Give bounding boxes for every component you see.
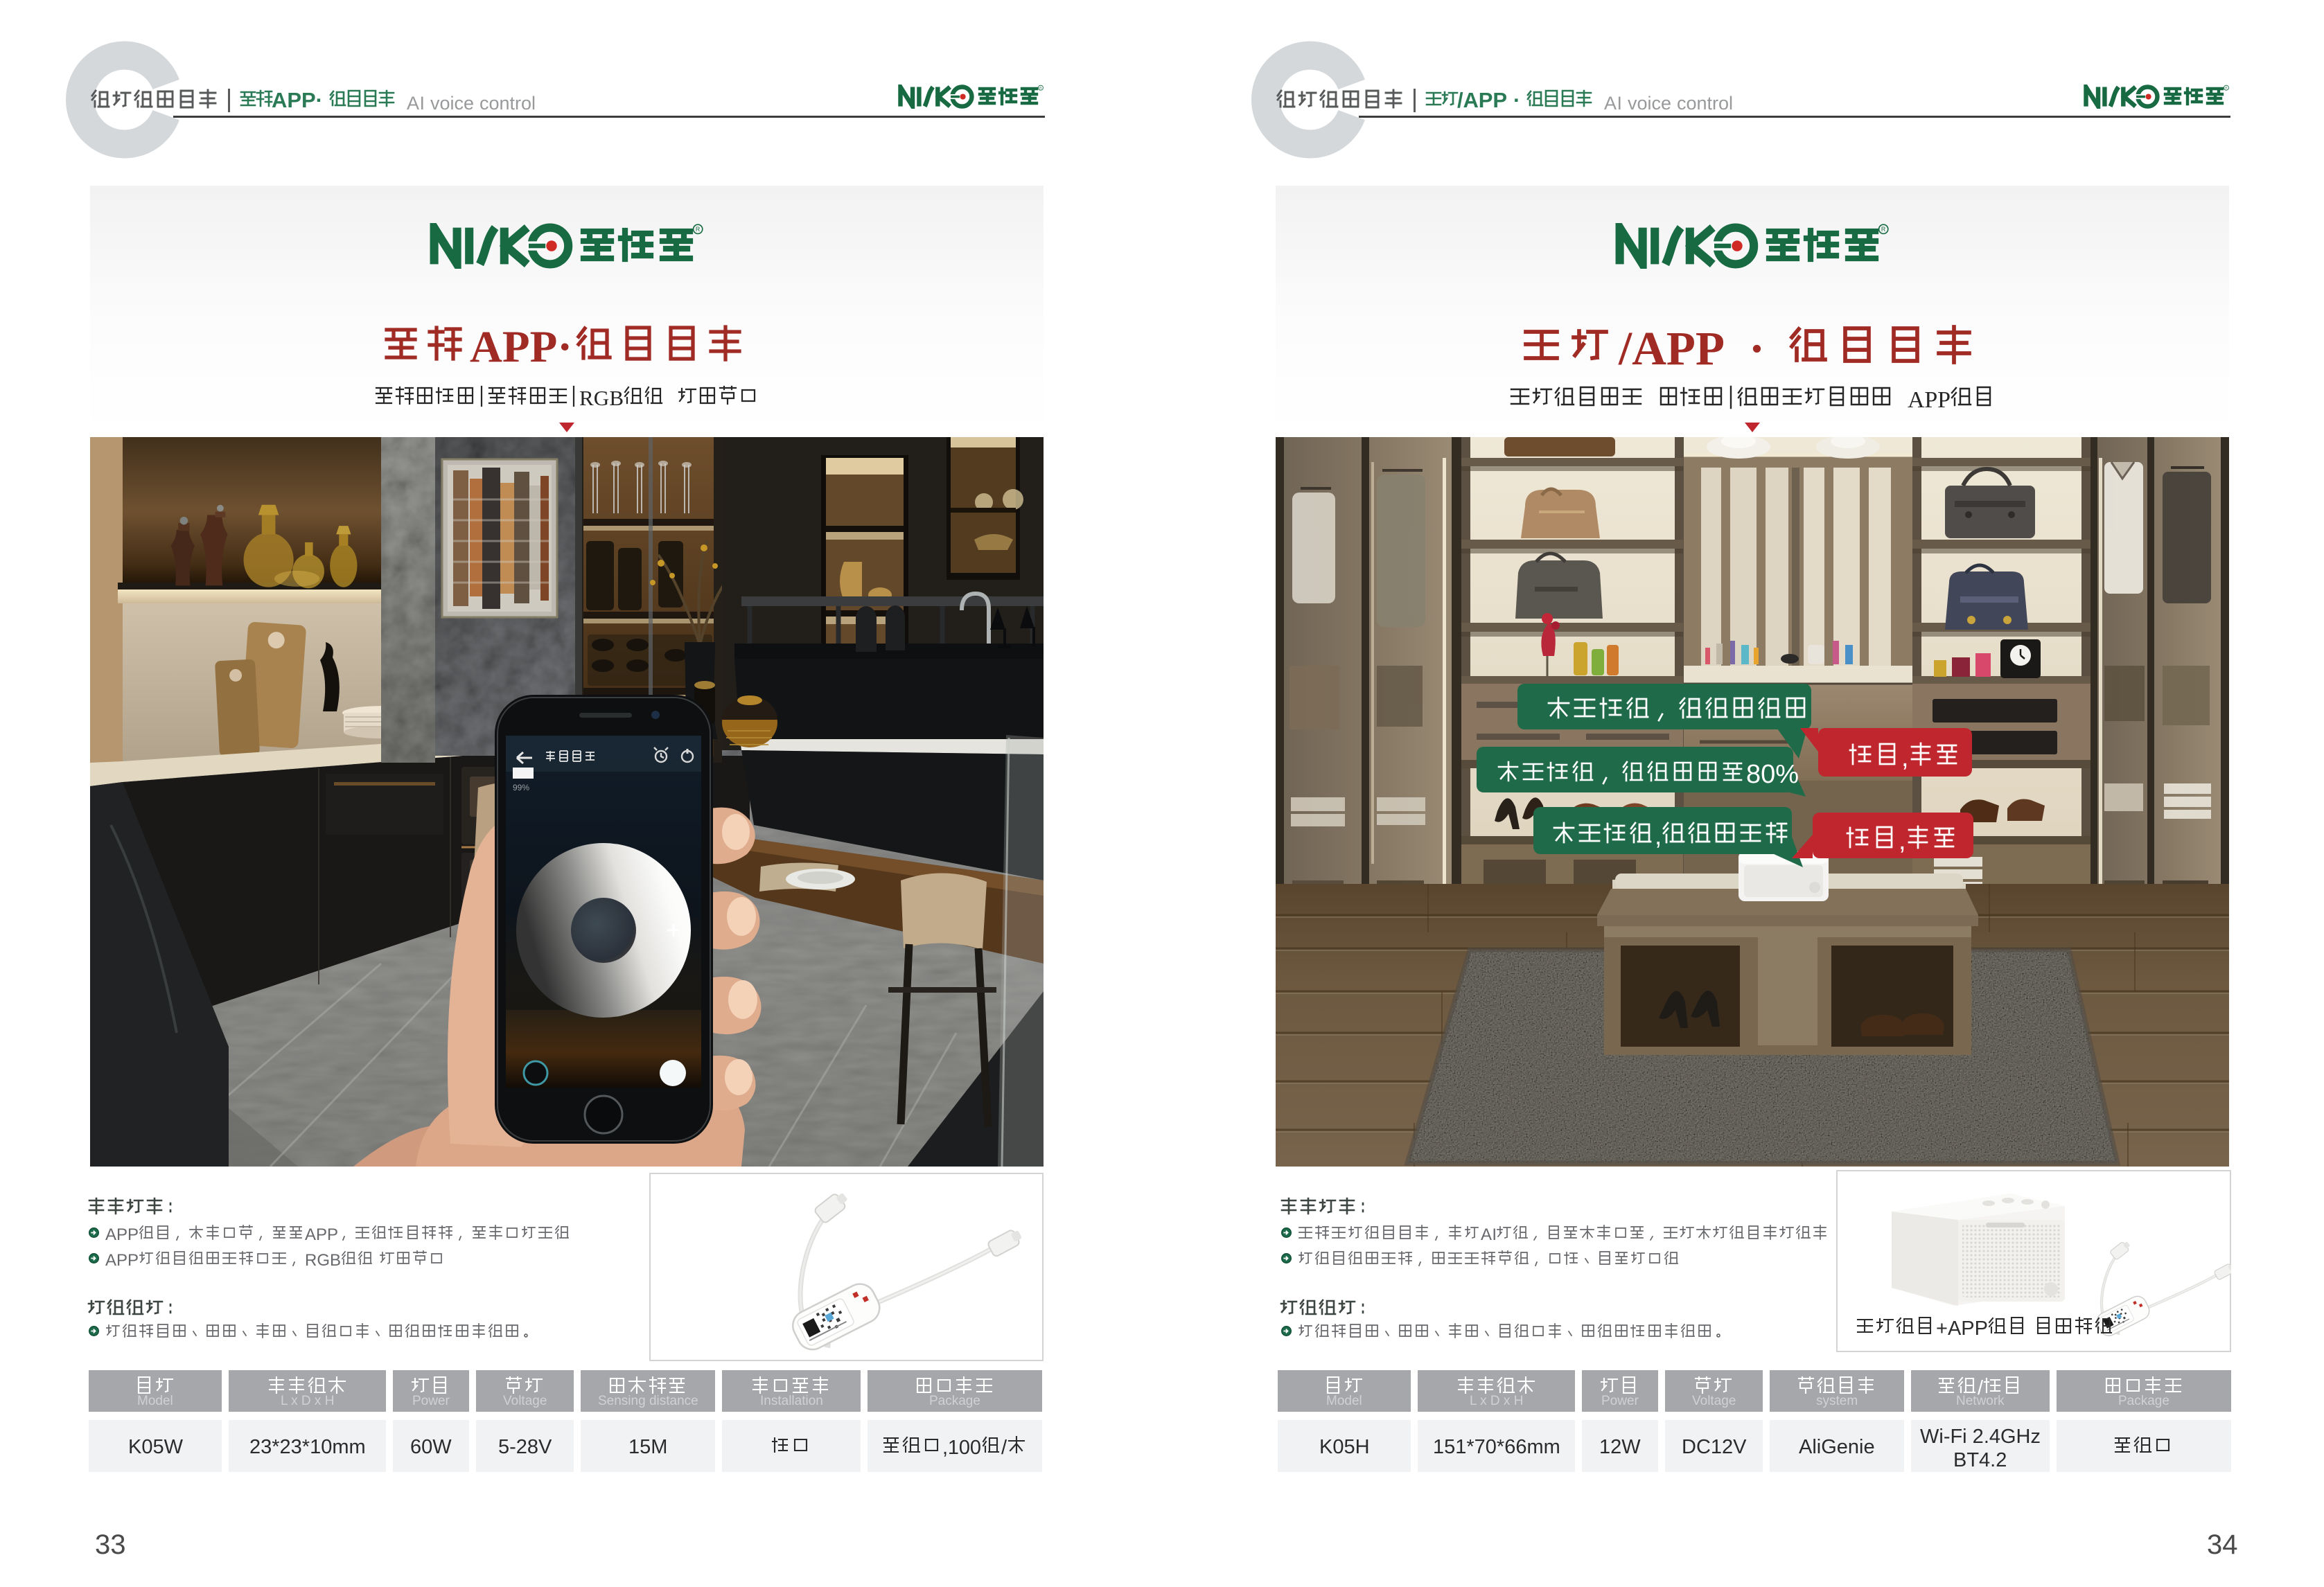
svg-text:·: · <box>1749 322 1765 375</box>
svg-text:/APP: /APP <box>1618 322 1725 375</box>
svg-text:99%: 99% <box>513 783 529 792</box>
svg-text:/: / <box>1001 1437 1007 1459</box>
svg-text:80%: 80% <box>1746 760 1799 789</box>
svg-text:APP: APP <box>105 1251 139 1270</box>
svg-text:RGB: RGB <box>579 386 624 410</box>
svg-text:,: , <box>1655 822 1662 850</box>
svg-text:,: , <box>1901 743 1909 772</box>
svg-text:voice: voice <box>1628 93 1671 114</box>
svg-text:control: control <box>479 93 536 114</box>
svg-text:AI: AI <box>407 93 425 114</box>
svg-text:APP: APP <box>305 1225 338 1244</box>
svg-text:voice: voice <box>430 93 474 114</box>
svg-text:control: control <box>1677 93 1733 114</box>
svg-text:R: R <box>696 226 700 233</box>
svg-text:AI: AI <box>1481 1225 1497 1244</box>
svg-text:R: R <box>1881 226 1885 233</box>
svg-text:+APP: +APP <box>1936 1318 1988 1340</box>
svg-text:,100: ,100 <box>942 1437 981 1459</box>
svg-text:·: · <box>1513 88 1520 112</box>
svg-text:APP: APP <box>105 1225 139 1244</box>
svg-text:R: R <box>1039 86 1042 89</box>
svg-text:APP·: APP· <box>470 322 572 372</box>
svg-text:,: , <box>1899 826 1906 855</box>
svg-text:APP·: APP· <box>272 88 323 112</box>
svg-text:APP: APP <box>1908 387 1951 413</box>
svg-text:R: R <box>2225 86 2228 89</box>
svg-text:/APP: /APP <box>1457 88 1507 112</box>
svg-text:AI: AI <box>1604 93 1622 114</box>
svg-text:RGB: RGB <box>305 1251 341 1270</box>
